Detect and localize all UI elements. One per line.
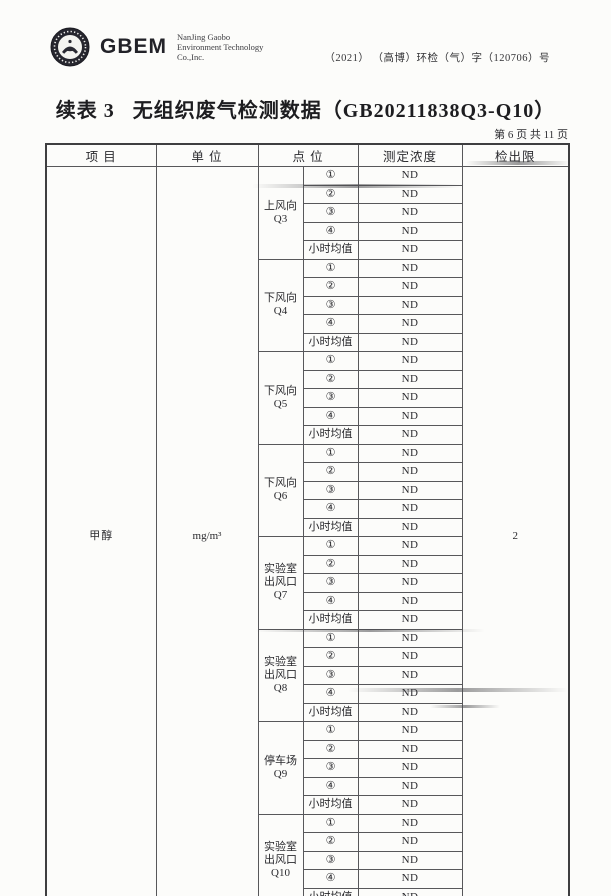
measured-concentration-cell: ND bbox=[358, 204, 462, 223]
sample-number-cell: 小时均值 bbox=[303, 518, 358, 537]
company-seal-icon bbox=[50, 27, 90, 67]
monitoring-point-label-line: Q5 bbox=[259, 398, 303, 411]
monitoring-point-group-cell: 实验室出风口Q7 bbox=[258, 537, 303, 630]
sample-number-cell: ④ bbox=[303, 685, 358, 704]
sample-number-cell: ② bbox=[303, 648, 358, 667]
measured-concentration-cell: ND bbox=[358, 333, 462, 352]
unit-cell: mg/m³ bbox=[156, 167, 258, 896]
sample-number-cell: ① bbox=[303, 352, 358, 371]
company-name-line-1: NanJing Gaobo bbox=[177, 32, 267, 42]
measured-concentration-cell: ND bbox=[358, 703, 462, 722]
item-cell: 甲醇 bbox=[46, 167, 156, 896]
sample-number-cell: 小时均值 bbox=[303, 888, 358, 896]
table-header-row: 项 目 单 位 点 位 测定浓度 检出限 bbox=[46, 144, 569, 167]
monitoring-point-label-line: Q10 bbox=[259, 867, 303, 880]
sample-number-cell: ④ bbox=[303, 500, 358, 519]
sample-number-cell: ③ bbox=[303, 666, 358, 685]
sample-number-cell: ② bbox=[303, 185, 358, 204]
measured-concentration-cell: ND bbox=[358, 777, 462, 796]
monitoring-point-label-line: 出风口 bbox=[259, 576, 303, 589]
measured-concentration-cell: ND bbox=[358, 574, 462, 593]
sample-number-cell: ② bbox=[303, 740, 358, 759]
sample-number-cell: ① bbox=[303, 722, 358, 741]
measured-concentration-cell: ND bbox=[358, 555, 462, 574]
measured-concentration-cell: ND bbox=[358, 481, 462, 500]
measured-concentration-cell: ND bbox=[358, 315, 462, 334]
detection-data-table: 项 目 单 位 点 位 测定浓度 检出限 甲醇mg/m³上风向Q3①ND2②ND… bbox=[45, 143, 570, 896]
measured-concentration-cell: ND bbox=[358, 278, 462, 297]
sample-number-cell: ③ bbox=[303, 759, 358, 778]
sample-number-cell: ④ bbox=[303, 315, 358, 334]
sample-number-cell: ① bbox=[303, 444, 358, 463]
sample-number-cell: ③ bbox=[303, 204, 358, 223]
sample-number-cell: ④ bbox=[303, 777, 358, 796]
measured-concentration-cell: ND bbox=[358, 500, 462, 519]
monitoring-point-label-line: 下风向 bbox=[259, 385, 303, 398]
sample-number-cell: ① bbox=[303, 167, 358, 186]
monitoring-point-label-line: Q8 bbox=[259, 682, 303, 695]
measured-concentration-cell: ND bbox=[358, 814, 462, 833]
measured-concentration-cell: ND bbox=[358, 611, 462, 630]
measured-concentration-cell: ND bbox=[358, 870, 462, 889]
measured-concentration-cell: ND bbox=[358, 426, 462, 445]
sample-number-cell: 小时均值 bbox=[303, 611, 358, 630]
column-header-detection-limit: 检出限 bbox=[462, 144, 569, 167]
measured-concentration-cell: ND bbox=[358, 629, 462, 648]
measured-concentration-cell: ND bbox=[358, 407, 462, 426]
measured-concentration-cell: ND bbox=[358, 740, 462, 759]
monitoring-point-label-line: 停车场 bbox=[259, 755, 303, 768]
column-header-unit: 单 位 bbox=[156, 144, 258, 167]
page-indicator: 第 6 页 共 11 页 bbox=[494, 126, 568, 142]
monitoring-point-label-line: 下风向 bbox=[259, 477, 303, 490]
sample-number-cell: ④ bbox=[303, 407, 358, 426]
table-body: 甲醇mg/m³上风向Q3①ND2②ND③ND④ND小时均值ND下风向Q4①ND②… bbox=[46, 167, 569, 896]
sample-number-cell: ③ bbox=[303, 481, 358, 500]
monitoring-point-label-line: 出风口 bbox=[259, 854, 303, 867]
column-header-item: 项 目 bbox=[46, 144, 156, 167]
sample-number-cell: ① bbox=[303, 629, 358, 648]
measured-concentration-cell: ND bbox=[358, 722, 462, 741]
monitoring-point-label-line: Q3 bbox=[259, 213, 303, 226]
measured-concentration-cell: ND bbox=[358, 851, 462, 870]
sample-number-cell: ④ bbox=[303, 592, 358, 611]
sample-number-cell: ② bbox=[303, 278, 358, 297]
monitoring-point-label-line: 下风向 bbox=[259, 292, 303, 305]
sample-number-cell: 小时均值 bbox=[303, 703, 358, 722]
measured-concentration-cell: ND bbox=[358, 796, 462, 815]
sample-number-cell: 小时均值 bbox=[303, 241, 358, 260]
monitoring-point-group-cell: 实验室出风口Q10 bbox=[258, 814, 303, 896]
measured-concentration-cell: ND bbox=[358, 648, 462, 667]
sample-number-cell: 小时均值 bbox=[303, 426, 358, 445]
sample-number-cell: 小时均值 bbox=[303, 796, 358, 815]
letterhead: GBEM NanJing Gaobo Environment Technolog… bbox=[50, 27, 267, 67]
column-header-concentration: 测定浓度 bbox=[358, 144, 462, 167]
measured-concentration-cell: ND bbox=[358, 259, 462, 278]
measured-concentration-cell: ND bbox=[358, 759, 462, 778]
sample-number-cell: ③ bbox=[303, 389, 358, 408]
sample-number-cell: ① bbox=[303, 814, 358, 833]
sample-number-cell: ④ bbox=[303, 870, 358, 889]
monitoring-point-label-line: 实验室 bbox=[259, 656, 303, 669]
company-name: NanJing Gaobo Environment Technology Co.… bbox=[177, 32, 267, 62]
measured-concentration-cell: ND bbox=[358, 352, 462, 371]
sample-number-cell: ② bbox=[303, 370, 358, 389]
monitoring-point-label-line: 实验室 bbox=[259, 563, 303, 576]
measured-concentration-cell: ND bbox=[358, 389, 462, 408]
measured-concentration-cell: ND bbox=[358, 537, 462, 556]
measured-concentration-cell: ND bbox=[358, 592, 462, 611]
sample-number-cell: ② bbox=[303, 555, 358, 574]
company-name-line-3: Co.,Inc. bbox=[177, 52, 267, 62]
column-header-point: 点 位 bbox=[258, 144, 358, 167]
sample-number-cell: ② bbox=[303, 833, 358, 852]
measured-concentration-cell: ND bbox=[358, 222, 462, 241]
table-row: 甲醇mg/m³上风向Q3①ND2 bbox=[46, 167, 569, 186]
sample-number-cell: ② bbox=[303, 463, 358, 482]
monitoring-point-label-line: Q4 bbox=[259, 305, 303, 318]
measured-concentration-cell: ND bbox=[358, 518, 462, 537]
measured-concentration-cell: ND bbox=[358, 833, 462, 852]
company-name-line-2: Environment Technology bbox=[177, 42, 267, 52]
monitoring-point-label-line: 实验室 bbox=[259, 841, 303, 854]
sample-number-cell: ③ bbox=[303, 851, 358, 870]
monitoring-point-label-line: Q7 bbox=[259, 589, 303, 602]
measured-concentration-cell: ND bbox=[358, 167, 462, 186]
sample-number-cell: ① bbox=[303, 537, 358, 556]
monitoring-point-group-cell: 下风向Q5 bbox=[258, 352, 303, 445]
measured-concentration-cell: ND bbox=[358, 463, 462, 482]
sample-number-cell: ③ bbox=[303, 296, 358, 315]
sample-number-cell: ① bbox=[303, 259, 358, 278]
logo-text: GBEM bbox=[100, 35, 167, 59]
measured-concentration-cell: ND bbox=[358, 241, 462, 260]
page-title: 续表 3 无组织废气检测数据（GB20211838Q3-Q10） bbox=[0, 94, 611, 123]
sample-number-cell: ④ bbox=[303, 222, 358, 241]
monitoring-point-group-cell: 实验室出风口Q8 bbox=[258, 629, 303, 722]
monitoring-point-label-line: Q6 bbox=[259, 490, 303, 503]
monitoring-point-group-cell: 下风向Q6 bbox=[258, 444, 303, 537]
document-number: （2021） （高博）环检（气）字（120706）号 bbox=[324, 50, 550, 65]
measured-concentration-cell: ND bbox=[358, 370, 462, 389]
measured-concentration-cell: ND bbox=[358, 296, 462, 315]
monitoring-point-label-line: 出风口 bbox=[259, 669, 303, 682]
measured-concentration-cell: ND bbox=[358, 888, 462, 896]
measured-concentration-cell: ND bbox=[358, 666, 462, 685]
monitoring-point-group-cell: 上风向Q3 bbox=[258, 167, 303, 260]
sample-number-cell: 小时均值 bbox=[303, 333, 358, 352]
monitoring-point-label-line: 上风向 bbox=[259, 200, 303, 213]
monitoring-point-group-cell: 停车场Q9 bbox=[258, 722, 303, 815]
measured-concentration-cell: ND bbox=[358, 444, 462, 463]
detection-limit-cell: 2 bbox=[462, 167, 569, 896]
table-header: 项 目 单 位 点 位 测定浓度 检出限 bbox=[46, 144, 569, 167]
sample-number-cell: ③ bbox=[303, 574, 358, 593]
report-page: GBEM NanJing Gaobo Environment Technolog… bbox=[0, 0, 611, 896]
monitoring-point-label-line: Q9 bbox=[259, 768, 303, 781]
measured-concentration-cell: ND bbox=[358, 185, 462, 204]
measured-concentration-cell: ND bbox=[358, 685, 462, 704]
monitoring-point-group-cell: 下风向Q4 bbox=[258, 259, 303, 352]
